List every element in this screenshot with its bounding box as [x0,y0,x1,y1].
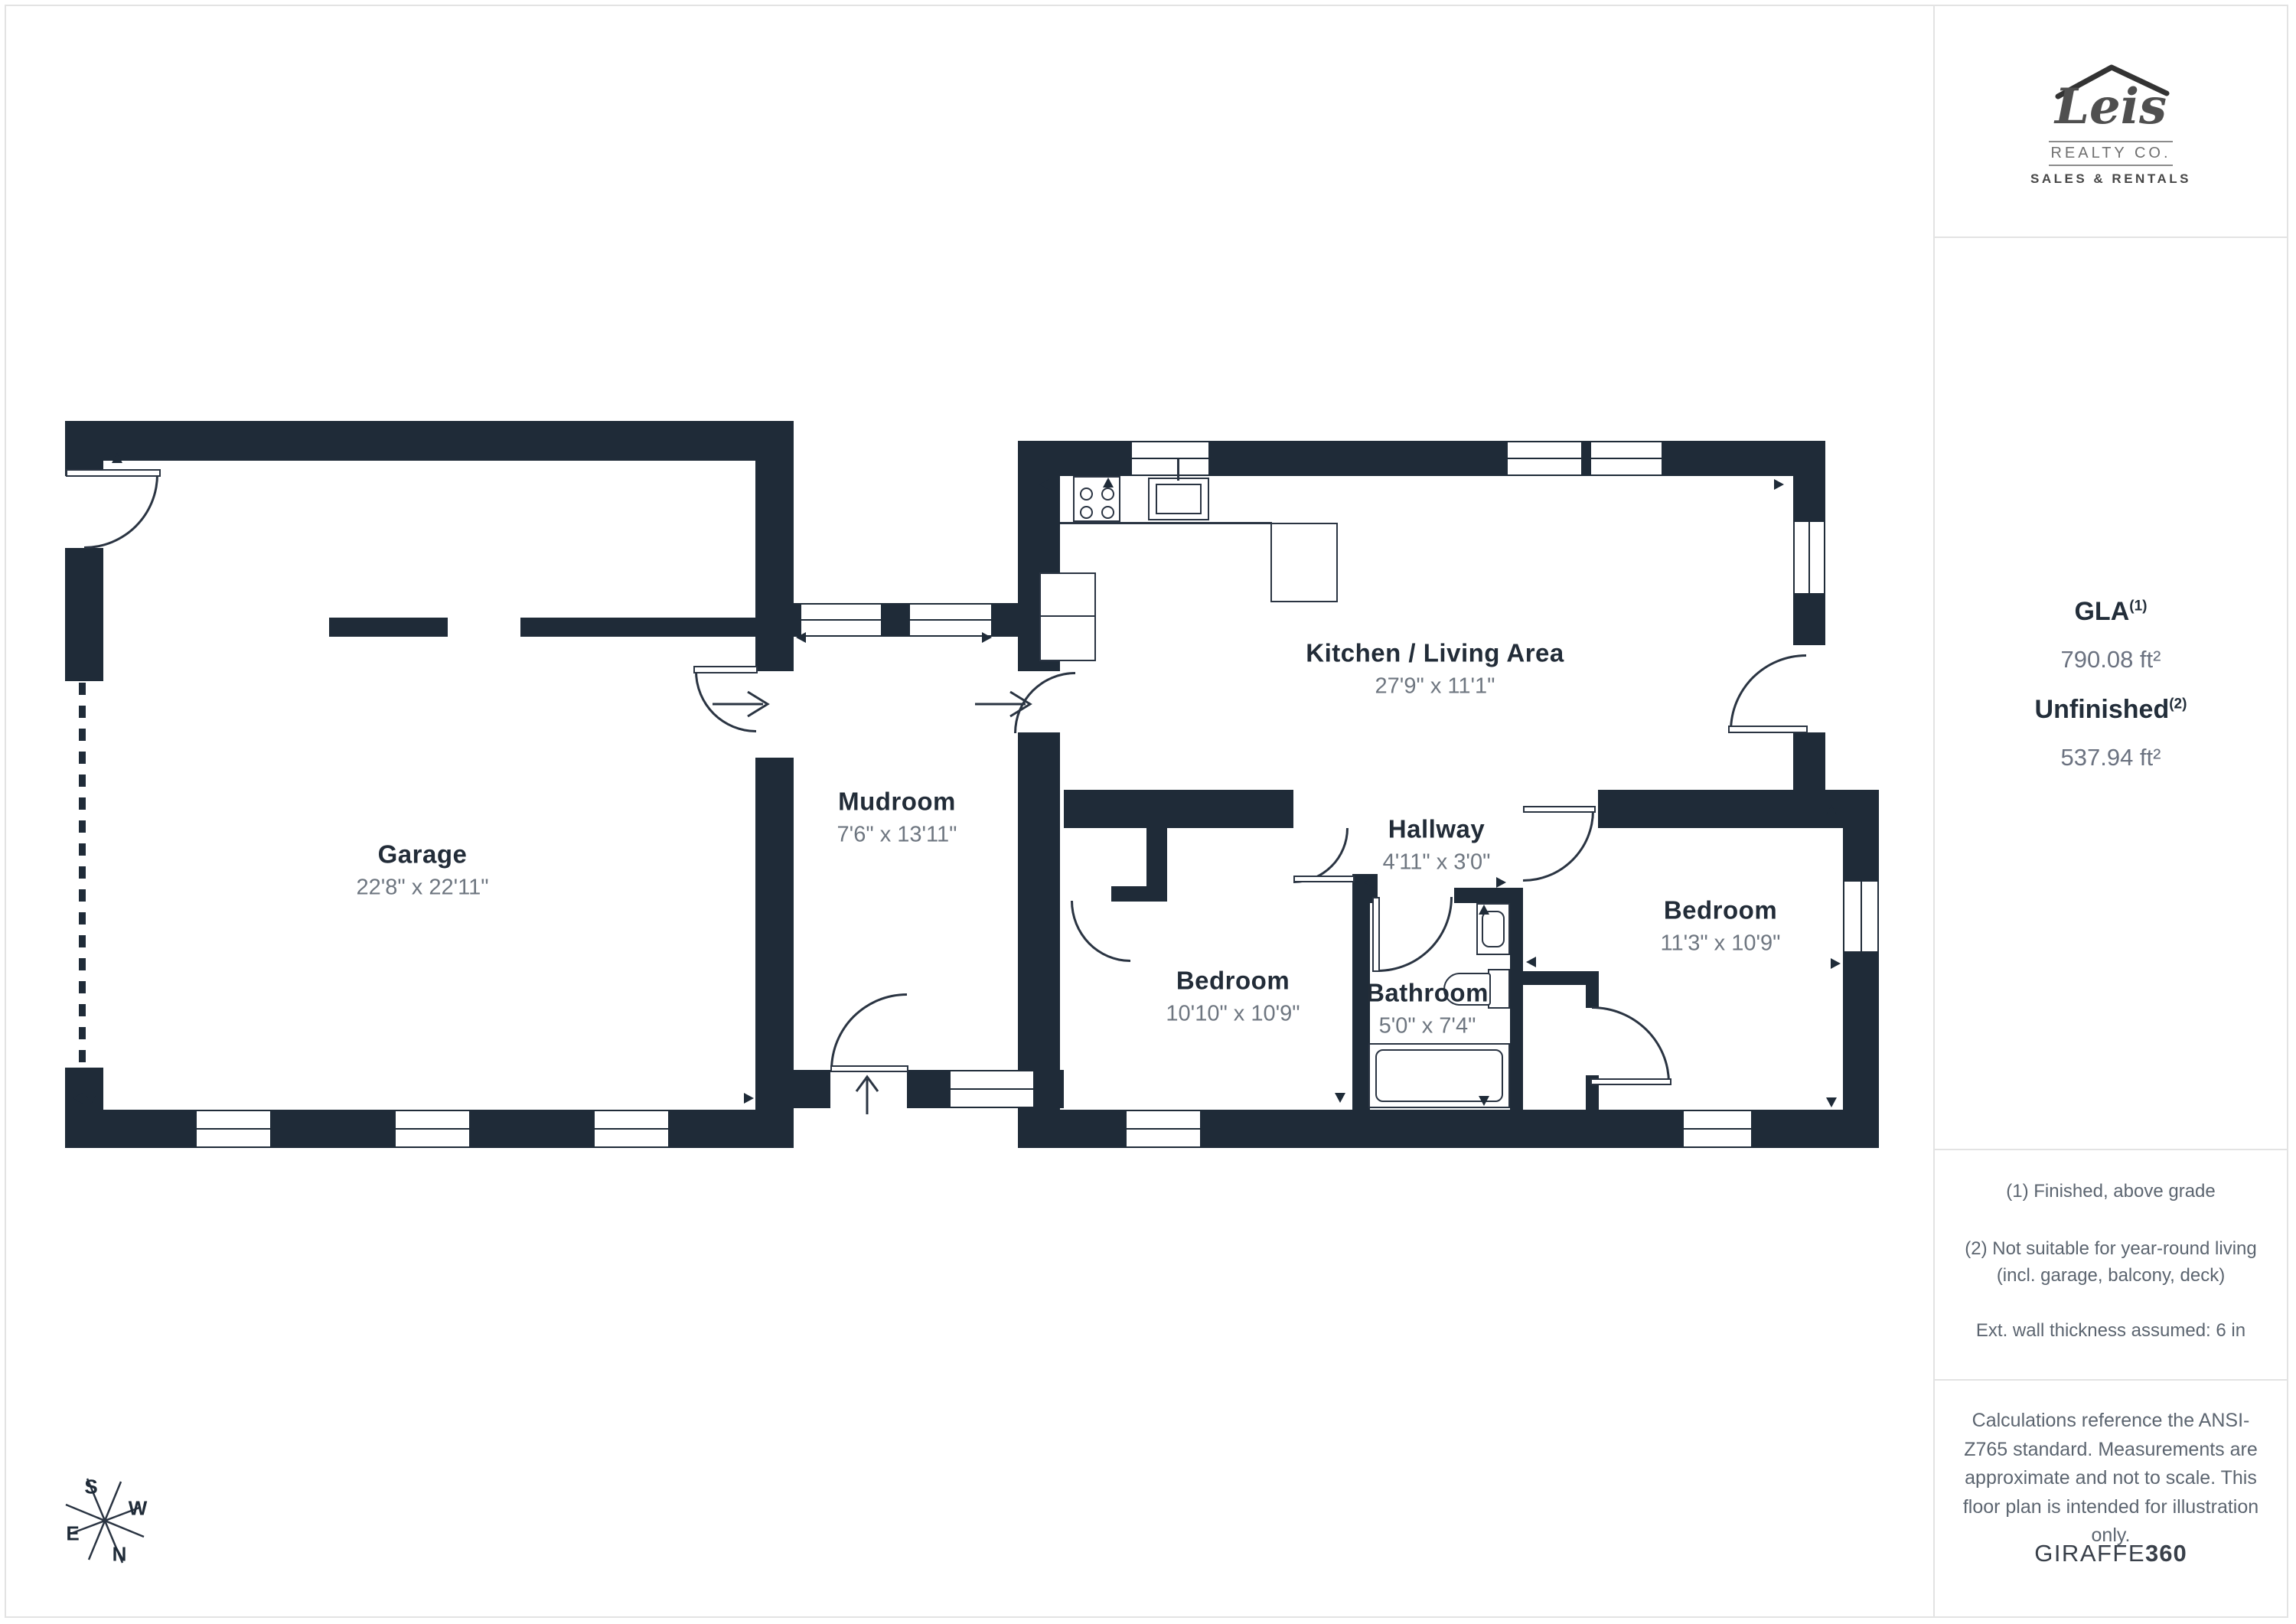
room-dims: 7'6" x 13'11" [837,823,957,848]
note-1: (1) Finished, above grade [1950,1179,2272,1205]
dim-arrow [796,632,806,643]
room-label-kitchen-living: Kitchen / Living Area 27'9" x 11'1" [1306,639,1564,699]
room-label-bedroom2: Bedroom 11'3" x 10'9" [1661,896,1781,957]
note-3: Ext. wall thickness assumed: 6 in [1950,1318,2272,1345]
window [1843,880,1879,953]
gla-label-text: GLA [2074,597,2129,626]
gla-superscript: (1) [2129,598,2147,615]
room-dims: 10'10" x 10'9" [1166,1002,1300,1027]
wall-bathroom-right [1510,888,1523,1148]
counter-edge [1060,522,1272,524]
entry-arrow-right-icon [708,687,781,721]
stove-burner [1080,506,1093,519]
note-2: (2) Not suitable for year-round living (… [1950,1236,2272,1290]
dim-arrow [1831,958,1841,969]
provider-logo: GIRAFFE360 [1935,1540,2287,1567]
window [1590,441,1663,476]
wall-bedroom2-closet-right-a [1586,985,1599,1008]
stove-burner [1101,506,1114,519]
section-divider [1935,1149,2287,1150]
room-name: Bedroom [1661,896,1781,925]
wall-bedroom1-closet-h [1111,886,1167,902]
unfinished-superscript: (2) [2169,696,2187,713]
wall-bedroom1-closet-v [1146,828,1167,888]
provider-suffix: 360 [2145,1540,2187,1567]
window [1793,520,1825,595]
dim-arrow [112,453,122,463]
toilet-tank [1488,969,1510,1009]
wall-garage-left-upper [65,421,103,476]
wall-garage-right-lower [755,758,794,1110]
room-name: Garage [356,840,488,869]
room-name: Bedroom [1166,967,1300,996]
room-label-garage: Garage 22'8" x 22'11" [356,840,488,901]
dim-arrow [1774,479,1784,490]
gla-label: GLA(1) [1935,597,2287,627]
dim-arrow [1826,1097,1837,1107]
door-leaf [66,469,161,477]
door-leaf [830,1065,908,1072]
disclaimer: Calculations reference the ANSI-Z765 sta… [1958,1407,2264,1551]
dim-arrow [1496,877,1506,888]
wall-mudroom-bottom-left [794,1070,830,1108]
window [1125,1110,1202,1148]
room-name: Hallway [1383,815,1491,844]
door-leaf [1728,726,1808,733]
wall-bathroom-top [1454,888,1510,903]
wall-bedroom2-closet-top [1523,971,1599,985]
sink-tap [1177,459,1179,481]
room-label-bathroom: Bathroom 5'0" x 7'4" [1366,979,1489,1039]
window [1506,441,1583,476]
logo-wordmark: Leis [1935,83,2287,132]
dim-arrow [1526,957,1536,967]
compass-north: N [113,1543,127,1567]
door-leaf [1523,806,1596,813]
vanity-sink-basin [1482,911,1505,947]
room-name: Kitchen / Living Area [1306,639,1564,668]
provider-name: GIRAFFE [2034,1540,2145,1567]
door-leaf [1372,897,1380,972]
window [1682,1110,1753,1148]
unfinished-label-text: Unfinished [2035,695,2170,724]
dim-arrow [1335,1093,1345,1103]
window [593,1110,670,1148]
room-name: Mudroom [837,788,957,817]
room-name: Bathroom [1366,979,1489,1008]
stove-burner [1101,488,1114,501]
dim-arrow [1039,479,1049,490]
room-dims: 27'9" x 11'1" [1306,674,1564,699]
door-leaf [1590,1078,1671,1085]
wall-house-right-b [1793,595,1825,645]
compass-east: E [66,1522,79,1546]
entry-arrow-right-icon [970,687,1043,721]
window [800,603,882,637]
logo-realty-text: REALTY CO. [2049,141,2172,166]
refrigerator-door-line [1041,615,1094,617]
logo-tagline: SALES & RENTALS [1935,171,2287,187]
compass-west: W [129,1497,148,1521]
window [394,1110,471,1148]
window [949,1070,1035,1108]
wall-garage-left-mid [65,548,103,681]
unfinished-value: 537.94 ft² [1935,744,2287,771]
section-divider [1935,1379,2287,1381]
room-dims: 11'3" x 10'9" [1661,931,1781,957]
floorplan-page: { "sidebar": { "logo": { "name": "Leis",… [0,0,2296,1624]
dim-arrow [86,1094,96,1104]
compass-south: S [84,1476,97,1499]
wall-garage-top [65,421,794,461]
dim-arrow [1479,1096,1489,1106]
entry-arrow-up-icon [850,1073,884,1119]
sidebar-divider [1933,6,1935,1618]
room-dims: 5'0" x 7'4" [1366,1014,1489,1039]
window [195,1110,272,1148]
room-label-mudroom: Mudroom 7'6" x 13'11" [837,788,957,848]
gla-value: 790.08 ft² [1935,646,2287,673]
logo-realty-row: REALTY CO. [1935,141,2287,166]
room-label-bedroom1: Bedroom 10'10" x 10'9" [1166,967,1300,1027]
unfinished-label: Unfinished(2) [1935,695,2287,725]
bathtub-inner [1375,1049,1503,1102]
door-leaf [693,666,758,673]
dim-arrow [1364,877,1374,888]
dim-arrow [1103,478,1114,488]
window [908,603,993,637]
wall-kitchen-south-left [1064,790,1293,828]
wall-garage-stub-a [329,618,448,637]
room-dims: 4'11" x 3'0" [1383,850,1491,876]
kitchen-sink-basin [1156,484,1202,514]
refrigerator [1039,572,1096,661]
dim-arrow [744,1093,754,1104]
dim-arrow [1479,905,1489,915]
stove-burner [1080,488,1093,501]
dim-arrow [1826,805,1837,815]
room-label-hallway: Hallway 4'11" x 3'0" [1383,815,1491,876]
dim-arrow [73,1093,83,1104]
garage-door-dashed [79,683,86,1065]
room-dims: 22'8" x 22'11" [356,876,488,901]
wall-garage-stub-b [520,618,794,637]
door-leaf [1293,876,1355,882]
window [1130,441,1210,476]
section-divider [1935,236,2287,238]
dim-arrow [982,632,992,643]
compass-star-icon [61,1473,149,1569]
counter-peninsula [1270,523,1338,602]
wall-house-right-a [1793,476,1825,520]
